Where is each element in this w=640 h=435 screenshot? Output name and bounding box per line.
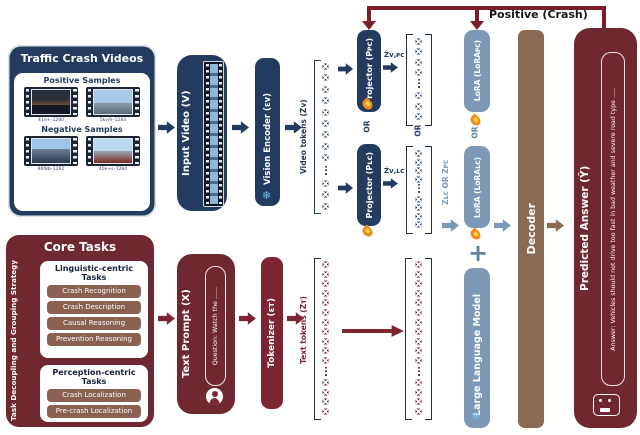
projected-token-group-pc [406, 34, 432, 124]
token [322, 357, 329, 364]
token [322, 408, 329, 415]
projected-token-group-lc [406, 146, 432, 232]
zselect-label: Zʟᴄ OR Zᴘᴄ [441, 150, 450, 214]
projected-tokens-lc-symbol: Ẑᴠ,ʟᴄ [384, 167, 404, 175]
bracket-left [406, 34, 413, 126]
arrow-tokens-to-projector-top [338, 63, 353, 75]
core-tasks-box: Core Tasks Task Decoupling and Grouping … [6, 235, 154, 427]
arrow-input-to-encoder [232, 121, 249, 134]
projector-pc-label: Projector (Pᴘᴄ) [365, 38, 374, 105]
crash-scene-highway [93, 89, 133, 115]
feedback-line-right-drop [602, 6, 606, 29]
video-filmstrip-icon [203, 61, 224, 207]
token [415, 103, 422, 110]
token [415, 408, 422, 415]
video-thumb-negative-1: 96f8b–1282 [20, 136, 82, 172]
token [415, 338, 422, 345]
token [322, 398, 329, 405]
token [415, 379, 422, 386]
arrow-tokens-to-projector-bottom [338, 182, 353, 194]
filmstrip-icon [24, 136, 78, 166]
token [415, 150, 422, 157]
plus-sign: + [468, 240, 488, 266]
input-video-label: Input Video (V) [181, 55, 192, 211]
feedback-arrowhead-projector [362, 21, 376, 30]
token [322, 86, 329, 93]
arrow-core-to-prompt [158, 312, 175, 325]
token [322, 180, 329, 187]
token [322, 319, 329, 326]
video-thumb-positive-2: 5kv/h–1284 [82, 87, 144, 123]
token [415, 38, 422, 45]
video-tokens-bracket [314, 60, 321, 214]
token [415, 48, 422, 55]
token [322, 271, 329, 278]
video-thumb-positive-1: 41d+–1280 [20, 87, 82, 123]
token [415, 176, 422, 183]
token [322, 191, 329, 198]
token [322, 347, 329, 354]
predicted-answer-box: Predicted Answer (Ŷ) Answer: Vehicles sh… [574, 28, 637, 428]
arrow-decoder-to-answer [547, 219, 564, 232]
token [415, 221, 422, 228]
ellipsis-dots [418, 79, 420, 89]
decoder-label: Decoder [525, 203, 538, 254]
token [415, 167, 422, 174]
feedback-arrowhead-lora [470, 21, 484, 30]
positive-samples-label: Positive Samples [14, 76, 150, 85]
projected-tokens-pc-symbol: Ẑᴠ,ᴘᴄ [384, 51, 404, 59]
text-prompt-label: Text Prompt (X) [181, 254, 192, 414]
lora-pc-label: LoRA (LoRAᴘᴄ) [473, 40, 482, 101]
filmstrip-frames [210, 64, 218, 204]
token [322, 290, 329, 297]
token [322, 154, 329, 161]
token [322, 97, 329, 104]
feedback-line-drop-lora [475, 6, 479, 22]
bracket-left [406, 146, 413, 234]
token [322, 63, 329, 70]
task-pill: Crash Description [47, 301, 141, 315]
input-video-box: Input Video (V) [177, 55, 227, 211]
token [415, 347, 422, 354]
answer-text: Answer: Vehicles should not drive too fa… [610, 88, 617, 351]
or-label-projected: OR [414, 124, 423, 136]
filmstrip-icon [86, 87, 140, 117]
flame-icon [360, 224, 374, 238]
task-pill: Crash Recognition [47, 285, 141, 299]
token [322, 120, 329, 127]
vision-encoder-bar: Vision Encoder (εᴠ) [255, 58, 280, 206]
bracket-right [425, 34, 432, 126]
token [322, 109, 329, 116]
linguistic-tasks-title: Linguistic-centric Tasks [42, 264, 146, 282]
bracket-right [425, 258, 432, 420]
core-tasks-title: Core Tasks [6, 240, 154, 254]
lora-lc-bar: LoRA (LoRAʟᴄ) [464, 146, 490, 228]
token [415, 196, 422, 203]
video-tokens-label: Video tokens (Zᴠ) [299, 92, 308, 182]
text-token-column [322, 261, 329, 415]
lora-pc-bar: LoRA (LoRAᴘᴄ) [464, 30, 490, 112]
bracket-left [405, 258, 412, 420]
ellipsis-dots [418, 367, 420, 377]
video-caption: 41d+–1280 [38, 118, 64, 123]
task-pill: Pre-crash Localization [47, 405, 141, 419]
negative-samples-label: Negative Samples [14, 125, 150, 134]
projector-lc-label: Projector (Pʟᴄ) [365, 152, 374, 219]
token [415, 213, 422, 220]
token [322, 74, 329, 81]
ellipsis-dots [325, 367, 327, 377]
or-label-lora: OR [471, 126, 480, 138]
perception-tasks-panel: Perception-centric Tasks Crash Localizat… [40, 365, 148, 422]
question-box: Question: Watch the ...... [205, 266, 226, 386]
token [415, 328, 422, 335]
vision-encoder-label: Vision Encoder (εᴠ) [263, 79, 273, 185]
or-label-projectors: OR [363, 120, 372, 132]
token [322, 143, 329, 150]
projector-lc-bar: Projector (Pʟᴄ) [357, 144, 381, 226]
traffic-crash-videos-box: Traffic Crash Videos Positive Samples 41… [8, 45, 156, 217]
text-tokens-label: Text tokens (Zᴛ) [299, 287, 308, 373]
token [322, 389, 329, 396]
projected-token-column-pc [415, 38, 422, 120]
token [322, 328, 329, 335]
task-pill: Crash Localization [47, 389, 141, 403]
normal-scene-road [93, 138, 133, 164]
question-text: Question: Watch the ...... [212, 287, 219, 365]
normal-scene-street [31, 138, 71, 164]
video-caption: 96f8b–1282 [38, 167, 65, 172]
text-tokens-bracket [314, 258, 321, 420]
video-caption: 40e+s–1284 [99, 167, 127, 172]
token [322, 309, 329, 316]
token [322, 261, 329, 268]
video-token-column [322, 63, 329, 210]
arrow-llm-to-decoder [494, 219, 511, 232]
task-pill: Prevention Reasoning [47, 333, 141, 347]
text-prompt-box: Text Prompt (X) Question: Watch the ....… [177, 254, 235, 414]
perception-tasks-title: Perception-centric Tasks [42, 368, 146, 386]
user-icon [206, 388, 223, 405]
ellipsis-dots [325, 166, 327, 176]
token [415, 280, 422, 287]
arrow-projector-pc-output [383, 62, 398, 73]
architecture-figure: Positive (Crash) Traffic Crash Videos Po… [0, 0, 640, 435]
token [415, 59, 422, 66]
traffic-crash-videos-title: Traffic Crash Videos [8, 52, 156, 65]
feedback-label: Positive (Crash) [489, 8, 588, 21]
token [322, 131, 329, 138]
token [415, 389, 422, 396]
snowflake-icon: ❄ [471, 411, 480, 422]
token [322, 280, 329, 287]
token [415, 309, 422, 316]
token [415, 204, 422, 211]
lora-lc-label: LoRA (LoRAʟᴄ) [473, 157, 482, 218]
llm-label: Large Language Model [472, 280, 483, 416]
token [415, 398, 422, 405]
snowflake-icon: ❄ [262, 190, 271, 201]
filmstrip-icon [86, 136, 140, 166]
answer-text-box: Answer: Vehicles should not drive too fa… [601, 52, 625, 386]
arrow-zselect-to-lora [442, 219, 459, 232]
token [415, 261, 422, 268]
token [322, 203, 329, 210]
filmstrip-icon [24, 87, 78, 117]
token [322, 338, 329, 345]
token [322, 299, 329, 306]
arrow-prompt-to-tokenizer [239, 312, 256, 325]
bracket-right [425, 146, 432, 234]
llm-bar: Large Language Model [464, 268, 490, 428]
token [415, 113, 422, 120]
arrow-projector-lc-output [383, 178, 398, 189]
robot-icon [593, 394, 620, 416]
tokenizer-bar: Tokenizer (εᴛ) [261, 257, 283, 409]
video-thumb-negative-2: 40e+s–1284 [82, 136, 144, 172]
text-token-column-llm [415, 261, 422, 415]
token [415, 290, 422, 297]
tokenizer-label: Tokenizer (εᴛ) [267, 298, 277, 368]
decoder-bar: Decoder [518, 30, 544, 428]
token [415, 319, 422, 326]
text-token-group-llm [405, 258, 432, 418]
token [415, 271, 422, 278]
ellipsis-dots [418, 184, 420, 194]
feedback-line-drop-projector [367, 6, 371, 22]
token [415, 159, 422, 166]
projected-token-column-lc [415, 150, 422, 228]
strategy-label: Task Decoupling and Grouping Strategy [9, 259, 18, 421]
predicted-answer-title: Predicted Answer (Ŷ) [579, 48, 591, 408]
token [415, 357, 422, 364]
linguistic-tasks-panel: Linguistic-centric Tasks Crash Recogniti… [40, 261, 148, 358]
crash-scene-night [31, 89, 71, 115]
video-caption: 5kv/h–1284 [100, 118, 126, 123]
token [415, 69, 422, 76]
token [415, 299, 422, 306]
task-pill: Causal Reasoning [47, 317, 141, 331]
arrow-videos-to-input [158, 121, 175, 134]
token [322, 379, 329, 386]
arrow-text-tokens-to-llm-input [342, 324, 404, 338]
samples-panel: Positive Samples 41d+–1280 5kv/h–1284 Ne… [14, 73, 150, 211]
token [415, 92, 422, 99]
